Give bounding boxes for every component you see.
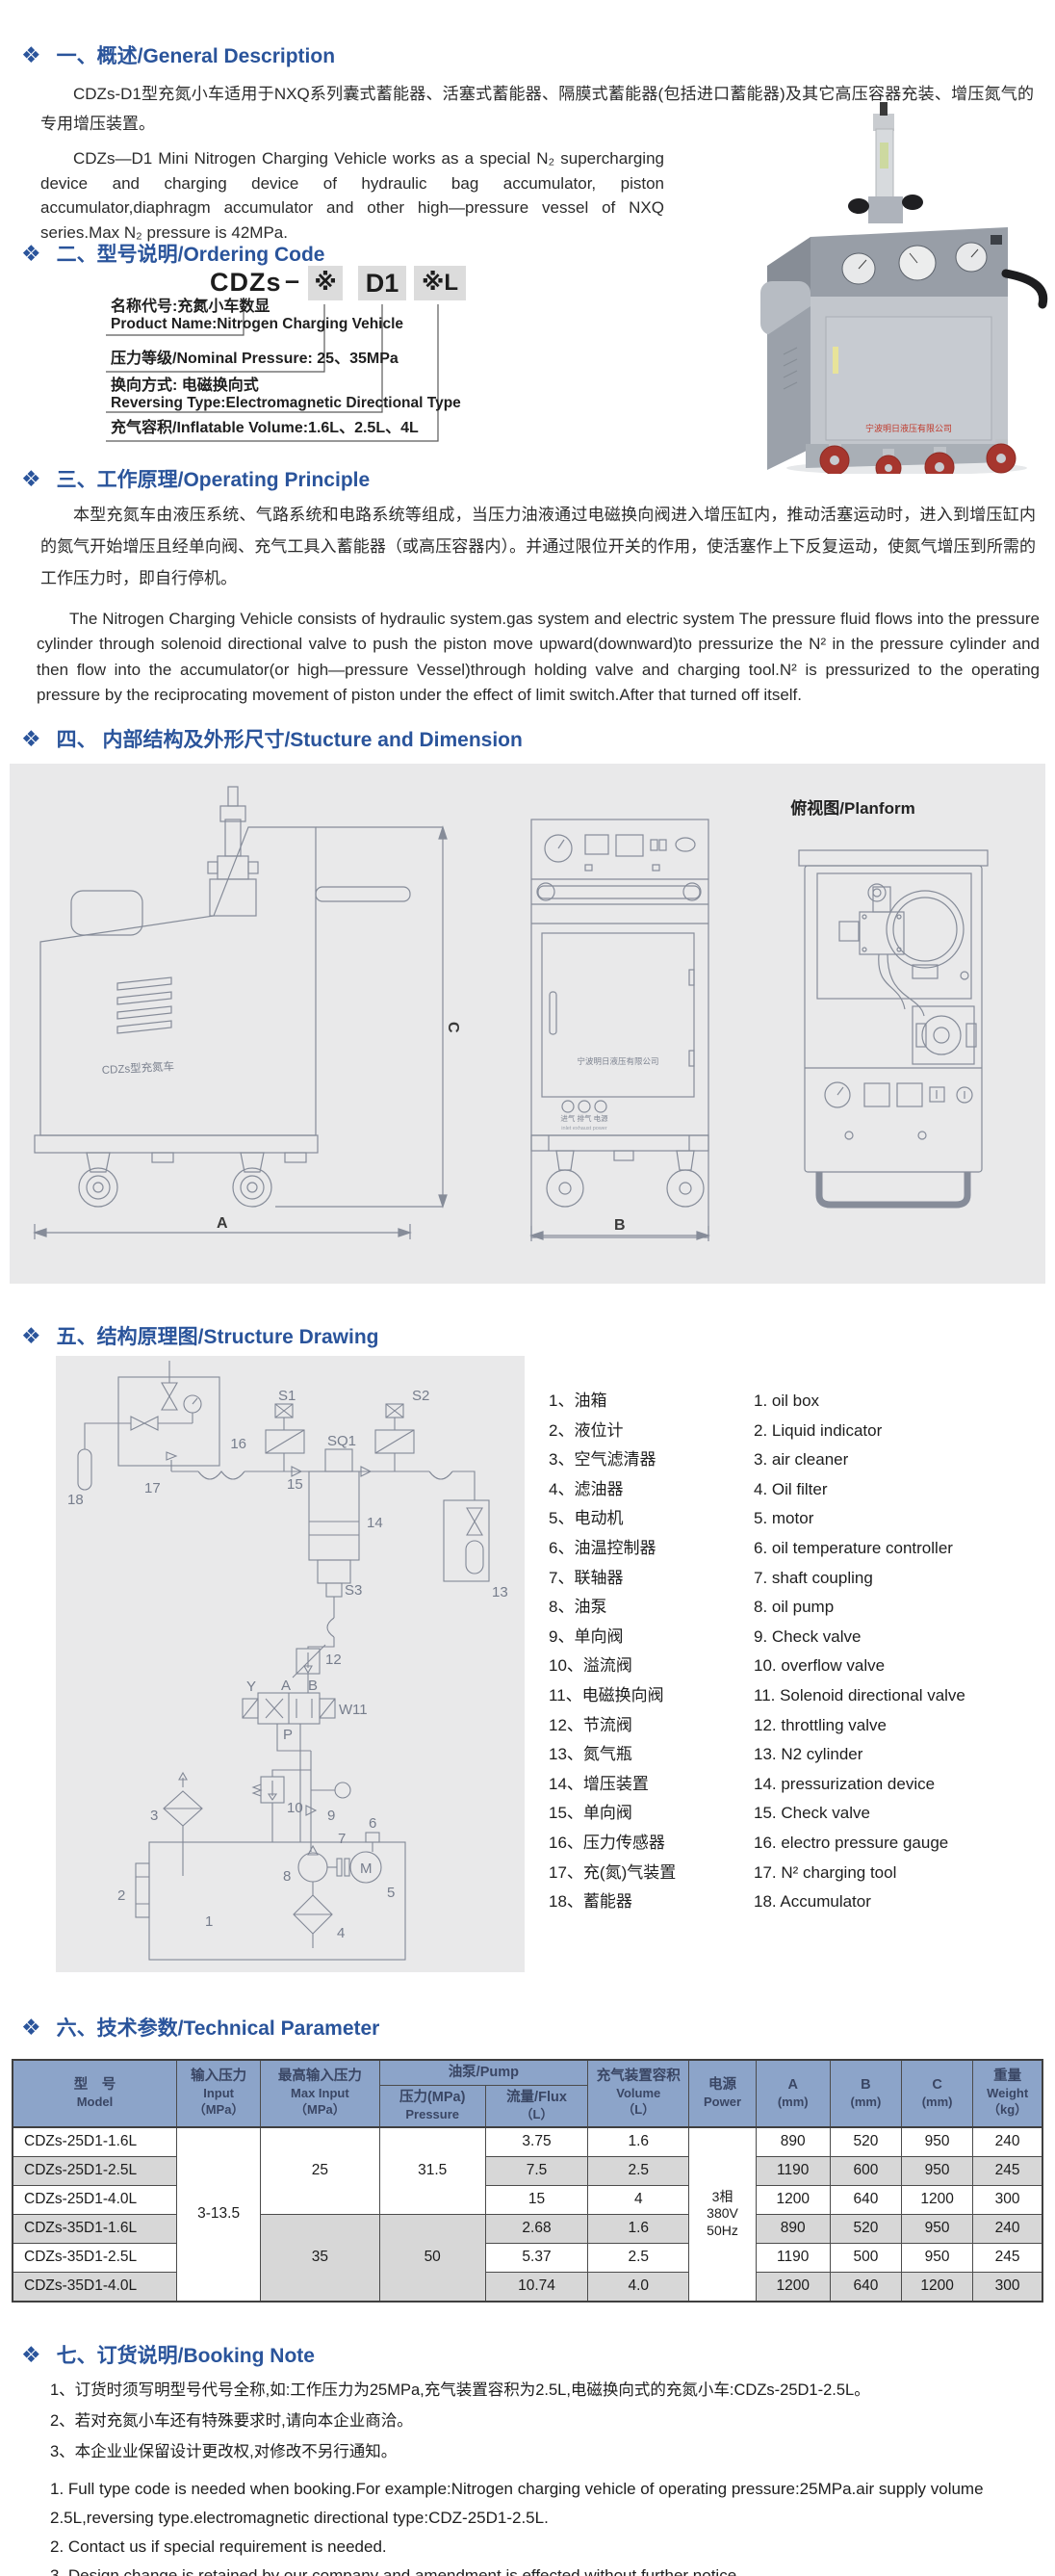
- sch-label-17: 17: [144, 1480, 161, 1496]
- table-row: CDZs-35D1-1.6L 35 50 2.68 1.6 890 520 95…: [13, 2214, 1042, 2243]
- cell-model: CDZs-35D1-4.0L: [13, 2272, 176, 2302]
- part-en: 14. pressurization device: [754, 1770, 965, 1800]
- diamond-bullet-icon: ❖: [21, 2017, 41, 2039]
- part-en: 17. N² charging tool: [754, 1859, 965, 1888]
- part-en: 13. N2 cylinder: [754, 1740, 965, 1770]
- th-pump-pressure: 压力(MPa)Pressure: [379, 2085, 485, 2126]
- cell-flux: 7.5: [485, 2156, 587, 2185]
- sch-label-16: 16: [230, 1436, 246, 1452]
- part-en: 9. Check valve: [754, 1623, 965, 1652]
- part-cn: 12、节流阀: [549, 1711, 754, 1741]
- cell-a: 1190: [756, 2243, 830, 2272]
- th-a: A(mm): [756, 2060, 830, 2127]
- part-en: 8. oil pump: [754, 1593, 965, 1623]
- part-en: 6. oil temperature controller: [754, 1534, 965, 1564]
- sch-label-9: 9: [327, 1808, 335, 1824]
- booking-note-cn: 3、本企业业保留设计更改权,对修改不另行通知。: [50, 2436, 1024, 2467]
- operating-principle-cn: 本型充氮车由液压系统、气路系统和电路系统等组成，当压力油液通过电磁换向阀进入增压…: [40, 499, 1036, 594]
- table-row: CDZs-35D1-4.0L 10.74 4.0 1200 640 1200 3…: [13, 2272, 1042, 2302]
- th-input: 输入压力Input（MPa）: [176, 2060, 260, 2127]
- photo-handle: [1006, 273, 1043, 304]
- section-6-header: ❖ 六、技术参数/Technical Parameter: [21, 2013, 379, 2042]
- cell-volume: 4: [588, 2185, 689, 2214]
- photo-cylinder-assembly: [848, 102, 923, 223]
- cell-b: 520: [830, 2214, 901, 2243]
- table-row: CDZs-35D1-2.5L 5.37 2.5 1190 500 950 245: [13, 2243, 1042, 2272]
- booking-note-en: 3. Design change is retained by our comp…: [50, 2562, 1024, 2576]
- dimension-drawing-panel: 俯视图/Planform CDZs型充氮车 宁波明日液压有限公司 进气 排气 电…: [10, 764, 1045, 1284]
- cell-flux: 3.75: [485, 2127, 587, 2157]
- booking-notes: 1、订货时须写明型号代号全称,如:工作压力为25MPa,充气装置容积为2.5L,…: [50, 2375, 1024, 2576]
- dim-b-label: B: [614, 1217, 626, 1234]
- booking-note-cn: 2、若对充氮小车还有特殊要求时,请向本企业商洽。: [50, 2406, 1024, 2436]
- sch-label-5: 5: [387, 1885, 395, 1901]
- diamond-bullet-icon: ❖: [21, 2344, 41, 2366]
- sch-label-sq1: SQ1: [327, 1433, 356, 1449]
- part-en: 12. throttling valve: [754, 1711, 965, 1741]
- th-b: B(mm): [830, 2060, 901, 2127]
- part-en: 5. motor: [754, 1504, 965, 1534]
- planform-label: 俯视图/Planform: [790, 798, 914, 818]
- cell-a: 890: [756, 2214, 830, 2243]
- code-label-pressure: 压力等级/Nominal Pressure: 25、35MPa: [111, 351, 399, 368]
- section-7-header: ❖ 七、订货说明/Booking Note: [21, 2340, 315, 2369]
- th-model: 型 号Model: [13, 2060, 176, 2127]
- product-photo: 宁波明日液压有限公司: [714, 92, 1049, 474]
- section-4-header: ❖ 四、 内部结构及外形尺寸/Stucture and Dimension: [21, 724, 523, 753]
- table-row: CDZs-25D1-4.0L 15 4 1200 640 1200 300: [13, 2185, 1042, 2214]
- photo-body-side: [767, 306, 811, 470]
- parts-list: 1、油箱 2、液位计 3、空气滤清器 4、滤油器 5、电动机 6、油温控制器 7…: [549, 1387, 1049, 1917]
- sch-label-s1: S1: [278, 1388, 296, 1404]
- part-en: 16. electro pressure gauge: [754, 1829, 965, 1859]
- cell-c: 1200: [902, 2185, 973, 2214]
- section-3-header: ❖ 三、工作原理/Operating Principle: [21, 464, 370, 493]
- cell-model: CDZs-25D1-2.5L: [13, 2156, 176, 2185]
- part-en: 4. Oil filter: [754, 1475, 965, 1505]
- sch-label-3: 3: [150, 1808, 158, 1824]
- photo-door: [826, 317, 991, 440]
- diamond-bullet-icon: ❖: [21, 468, 41, 490]
- part-en: 18. Accumulator: [754, 1887, 965, 1917]
- cell-weight: 240: [973, 2127, 1042, 2157]
- cell-flux: 15: [485, 2185, 587, 2214]
- table-row: CDZs-25D1-1.6L 3-13.5 25 31.5 3.75 1.6 3…: [13, 2127, 1042, 2157]
- cell-weight: 300: [973, 2272, 1042, 2302]
- side-view-label: CDZs型充氮车: [101, 1059, 174, 1077]
- table-row: CDZs-25D1-2.5L 7.5 2.5 1190 600 950 245: [13, 2156, 1042, 2185]
- sch-label-10: 10: [287, 1800, 303, 1816]
- section-5-header: ❖ 五、结构原理图/Structure Drawing: [21, 1321, 379, 1350]
- cell-weight: 245: [973, 2243, 1042, 2272]
- part-cn: 18、蓄能器: [549, 1887, 754, 1917]
- cell-weight: 300: [973, 2185, 1042, 2214]
- part-cn: 14、增压装置: [549, 1770, 754, 1800]
- part-cn: 13、氮气瓶: [549, 1740, 754, 1770]
- cell-c: 950: [902, 2243, 973, 2272]
- cell-b: 640: [830, 2272, 901, 2302]
- cell-flux: 10.74: [485, 2272, 587, 2302]
- diamond-bullet-icon: ❖: [21, 1325, 41, 1347]
- sch-label-4: 4: [337, 1925, 345, 1941]
- section-1-header: ❖ 一、概述/General Description: [21, 40, 335, 69]
- part-en: 1. oil box: [754, 1387, 965, 1417]
- part-en: 10. overflow valve: [754, 1652, 965, 1681]
- cell-b: 600: [830, 2156, 901, 2185]
- parts-list-cn: 1、油箱 2、液位计 3、空气滤清器 4、滤油器 5、电动机 6、油温控制器 7…: [549, 1387, 754, 1917]
- sch-label-14: 14: [367, 1515, 383, 1531]
- technical-parameter-table: 型 号Model 输入压力Input（MPa） 最高输入压力Max Input（…: [12, 2059, 1043, 2303]
- photo-door-slot: [833, 347, 838, 374]
- dim-c-label: C: [445, 1022, 461, 1033]
- code-label-product-name: 名称代号:充氮小车数显 Product Name:Nitrogen Chargi…: [111, 299, 403, 333]
- cell-model: CDZs-35D1-2.5L: [13, 2243, 176, 2272]
- cell-b: 500: [830, 2243, 901, 2272]
- sch-label-a: A: [281, 1678, 291, 1694]
- cell-flux: 5.37: [485, 2243, 587, 2272]
- sch-label-s2: S2: [412, 1388, 429, 1404]
- diamond-bullet-icon: ❖: [21, 44, 41, 66]
- part-cn: 1、油箱: [549, 1387, 754, 1417]
- sch-label-6: 6: [369, 1815, 376, 1832]
- cell-volume: 1.6: [588, 2214, 689, 2243]
- diamond-bullet-icon: ❖: [21, 728, 41, 750]
- sch-label-11: 11: [352, 1702, 368, 1718]
- part-cn: 9、单向阀: [549, 1623, 754, 1652]
- part-cn: 3、空气滤清器: [549, 1445, 754, 1475]
- th-max-input: 最高输入压力Max Input（MPa）: [261, 2060, 379, 2127]
- code-label-reversing-cn: 换向方式: 电磁换向式: [111, 377, 461, 395]
- sch-label-18: 18: [67, 1492, 84, 1508]
- cell-c: 950: [902, 2127, 973, 2157]
- section-3-title: 三、工作原理/Operating Principle: [57, 464, 371, 493]
- front-view-port-labels: 进气 排气 电源: [560, 1113, 608, 1123]
- section-7-title: 七、订货说明/Booking Note: [57, 2340, 315, 2369]
- part-cn: 6、油温控制器: [549, 1534, 754, 1564]
- cell-a: 1200: [756, 2272, 830, 2302]
- part-cn: 11、电磁换向阀: [549, 1681, 754, 1711]
- cell-flux: 2.68: [485, 2214, 587, 2243]
- sch-label-m: M: [360, 1860, 373, 1877]
- photo-company-text: 宁波明日液压有限公司: [865, 423, 952, 433]
- cell-weight: 240: [973, 2214, 1042, 2243]
- planform-drawing: [799, 850, 988, 1205]
- cell-model: CDZs-25D1-4.0L: [13, 2185, 176, 2214]
- parts-list-en: 1. oil box 2. Liquid indicator 3. air cl…: [754, 1387, 965, 1917]
- part-cn: 7、联轴器: [549, 1564, 754, 1594]
- front-view-drawing: [531, 820, 708, 1241]
- cell-c: 950: [902, 2214, 973, 2243]
- section-6-title: 六、技术参数/Technical Parameter: [57, 2013, 380, 2042]
- cell-max-input-35: 35: [261, 2214, 379, 2302]
- side-view-drawing: [35, 787, 447, 1239]
- cell-pressure-35: 50: [379, 2214, 485, 2302]
- th-weight: 重量Weight（kg）: [973, 2060, 1042, 2127]
- part-en: 15. Check valve: [754, 1799, 965, 1829]
- cell-a: 890: [756, 2127, 830, 2157]
- section-4-title: 四、 内部结构及外形尺寸/Stucture and Dimension: [57, 724, 523, 753]
- schematic-panel: S1 S2 SQ1 16 15 17 18 14 S3 13 12 W 11 Y…: [56, 1356, 525, 1972]
- sch-label-b: B: [308, 1678, 318, 1694]
- cell-b: 640: [830, 2185, 901, 2214]
- th-volume: 充气装置容积Volume（L）: [588, 2060, 689, 2127]
- part-cn: 8、油泵: [549, 1593, 754, 1623]
- dim-a-label: A: [217, 1215, 228, 1232]
- hydraulic-schematic: S1 S2 SQ1 16 15 17 18 14 S3 13 12 W 11 Y…: [56, 1356, 525, 1972]
- sch-label-1: 1: [205, 1913, 213, 1930]
- front-view-port-labels-en: inlet exhaust power: [561, 1126, 607, 1132]
- part-cn: 17、充(氮)气装置: [549, 1859, 754, 1888]
- part-en: 7. shaft coupling: [754, 1564, 965, 1594]
- part-en: 11. Solenoid directional valve: [754, 1681, 965, 1711]
- part-cn: 5、电动机: [549, 1504, 754, 1534]
- section-1-title: 一、概述/General Description: [57, 40, 335, 69]
- code-label-product-name-cn: 名称代号:充氮小车数显: [111, 299, 403, 316]
- cell-model: CDZs-25D1-1.6L: [13, 2127, 176, 2157]
- code-label-product-name-en: Product Name:Nitrogen Charging Vehicle: [111, 316, 403, 333]
- cell-model: CDZs-35D1-1.6L: [13, 2214, 176, 2243]
- operating-principle-en: The Nitrogen Charging Vehicle consists o…: [37, 607, 1040, 708]
- cell-pressure-25: 31.5: [379, 2127, 485, 2215]
- part-en: 2. Liquid indicator: [754, 1417, 965, 1446]
- code-label-reversing-en: Reversing Type:Electromagnetic Direction…: [111, 395, 461, 412]
- sch-label-8: 8: [283, 1868, 291, 1885]
- sch-label-2: 2: [117, 1887, 125, 1904]
- th-pump-flux: 流量/Flux（L）: [485, 2085, 587, 2126]
- cell-max-input-25: 25: [261, 2127, 379, 2215]
- cell-volume: 2.5: [588, 2243, 689, 2272]
- sch-label-7: 7: [338, 1831, 346, 1847]
- cell-volume: 4.0: [588, 2272, 689, 2302]
- cell-a: 1190: [756, 2156, 830, 2185]
- sch-label-p: P: [283, 1727, 293, 1743]
- th-c: C(mm): [902, 2060, 973, 2127]
- cell-volume: 2.5: [588, 2156, 689, 2185]
- sch-label-y: Y: [246, 1678, 256, 1695]
- code-label-volume: 充气容积/Inflatable Volume:1.6L、2.5L、4L: [111, 420, 419, 437]
- front-view-company-label: 宁波明日液压有限公司: [577, 1056, 658, 1066]
- booking-note-en: 1. Full type code is needed when booking…: [50, 2475, 1024, 2533]
- cell-weight: 245: [973, 2156, 1042, 2185]
- cell-a: 1200: [756, 2185, 830, 2214]
- booking-note-cn: 1、订货时须写明型号代号全称,如:工作压力为25MPa,充气装置容积为2.5L,…: [50, 2375, 1024, 2406]
- sch-label-w: W: [339, 1702, 353, 1718]
- cell-c: 1200: [902, 2272, 973, 2302]
- part-cn: 10、溢流阀: [549, 1652, 754, 1681]
- part-cn: 15、单向阀: [549, 1799, 754, 1829]
- dimension-drawing: 俯视图/Planform CDZs型充氮车 宁波明日液压有限公司 进气 排气 电…: [10, 764, 1045, 1284]
- th-power: 电源Power: [689, 2060, 756, 2127]
- cell-volume: 1.6: [588, 2127, 689, 2157]
- sch-label-s3: S3: [345, 1582, 362, 1599]
- cell-power: 3相 380V 50Hz: [689, 2127, 756, 2302]
- cell-input: 3-13.5: [176, 2127, 260, 2302]
- sch-label-15: 15: [287, 1476, 303, 1493]
- section-5-title: 五、结构原理图/Structure Drawing: [57, 1321, 379, 1350]
- part-en: 3. air cleaner: [754, 1445, 965, 1475]
- part-cn: 16、压力传感器: [549, 1829, 754, 1859]
- part-cn: 2、液位计: [549, 1417, 754, 1446]
- th-pump-group: 油泵/Pump: [379, 2060, 588, 2085]
- cell-b: 520: [830, 2127, 901, 2157]
- booking-note-en: 2. Contact us if special requirement is …: [50, 2533, 1024, 2562]
- datasheet-page: ❖ 一、概述/General Description CDZs-D1型充氮小车适…: [0, 0, 1055, 2576]
- part-cn: 4、滤油器: [549, 1475, 754, 1505]
- cell-c: 950: [902, 2156, 973, 2185]
- sch-label-12: 12: [325, 1652, 342, 1668]
- general-description-en: CDZs—D1 Mini Nitrogen Charging Vehicle w…: [40, 146, 664, 245]
- code-label-reversing: 换向方式: 电磁换向式 Reversing Type:Electromagnet…: [111, 377, 461, 412]
- sch-label-13: 13: [492, 1584, 508, 1600]
